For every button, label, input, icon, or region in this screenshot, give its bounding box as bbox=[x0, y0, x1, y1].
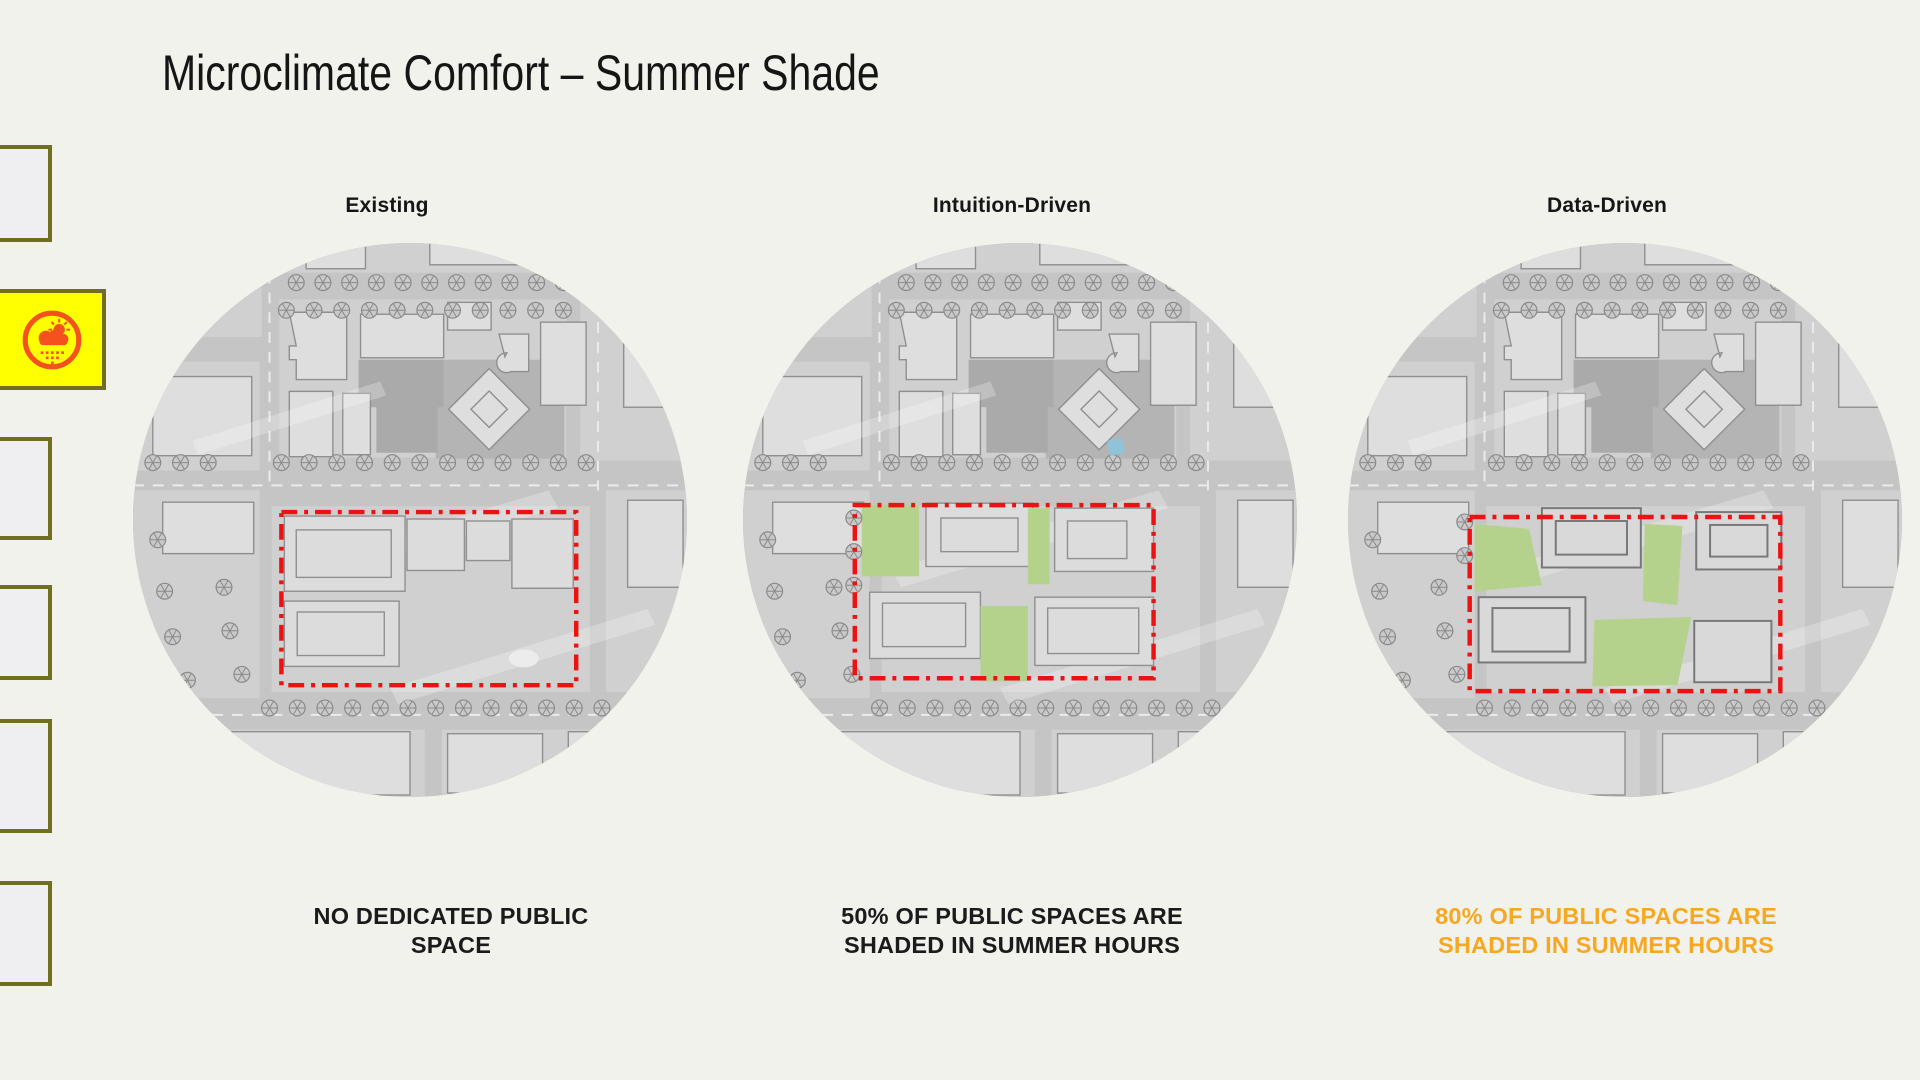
caption-line: SHADED IN SUMMER HOURS bbox=[1386, 931, 1826, 960]
column-label-intuition-driven: Intuition-Driven bbox=[735, 194, 1289, 218]
caption-line: SHADED IN SUMMER HOURS bbox=[792, 931, 1232, 960]
caption-line: NO DEDICATED PUBLIC bbox=[231, 902, 671, 931]
slide-thumbnail-4[interactable] bbox=[0, 585, 52, 680]
caption-data-driven: 80% OF PUBLIC SPACES ARE SHADED IN SUMME… bbox=[1386, 902, 1826, 960]
slide-thumbnail-2-active[interactable] bbox=[0, 289, 106, 390]
city-map-intuition bbox=[743, 243, 1297, 797]
caption-intuition-driven: 50% OF PUBLIC SPACES ARE SHADED IN SUMME… bbox=[792, 902, 1232, 960]
map-existing bbox=[133, 243, 687, 797]
slide-thumbnail-1[interactable] bbox=[0, 145, 52, 242]
sun-cloud-rain-icon bbox=[18, 306, 86, 374]
column-label-existing: Existing bbox=[110, 194, 664, 218]
city-map-data bbox=[1348, 243, 1902, 797]
caption-line: SPACE bbox=[231, 931, 671, 960]
page-title: Microclimate Comfort – Summer Shade bbox=[162, 44, 880, 102]
city-map-existing bbox=[133, 243, 687, 797]
slide-thumbnail-3[interactable] bbox=[0, 437, 52, 540]
slide-thumbnail-5[interactable] bbox=[0, 719, 52, 833]
map-data-driven bbox=[1348, 243, 1902, 797]
caption-line: 80% OF PUBLIC SPACES ARE bbox=[1386, 902, 1826, 931]
map-intuition-driven bbox=[743, 243, 1297, 797]
water-feature bbox=[1107, 438, 1125, 456]
caption-line: 50% OF PUBLIC SPACES ARE bbox=[792, 902, 1232, 931]
column-label-data-driven: Data-Driven bbox=[1330, 194, 1884, 218]
slide-thumbnail-6[interactable] bbox=[0, 881, 52, 986]
caption-existing: NO DEDICATED PUBLIC SPACE bbox=[231, 902, 671, 960]
